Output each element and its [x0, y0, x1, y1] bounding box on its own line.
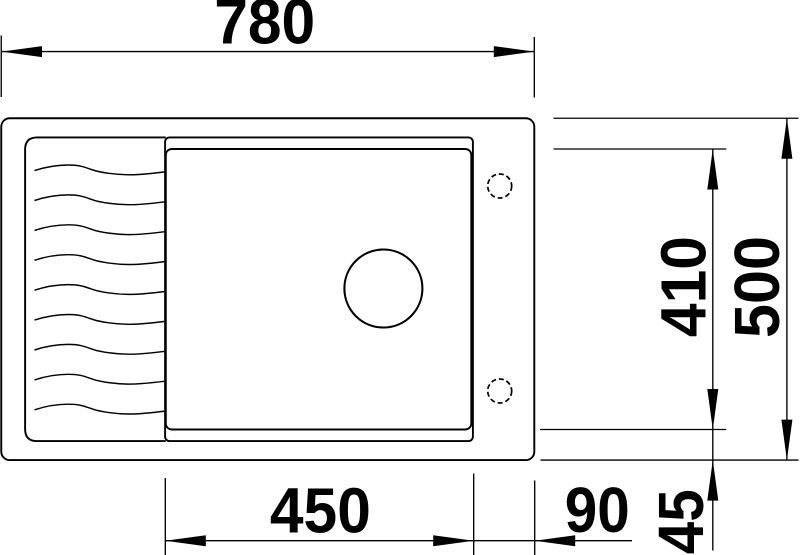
svg-text:90: 90: [565, 474, 630, 546]
svg-text:450: 450: [270, 474, 371, 546]
svg-text:410: 410: [647, 236, 719, 337]
svg-text:45: 45: [645, 489, 717, 554]
svg-text:500: 500: [721, 236, 793, 338]
svg-text:780: 780: [214, 0, 315, 58]
